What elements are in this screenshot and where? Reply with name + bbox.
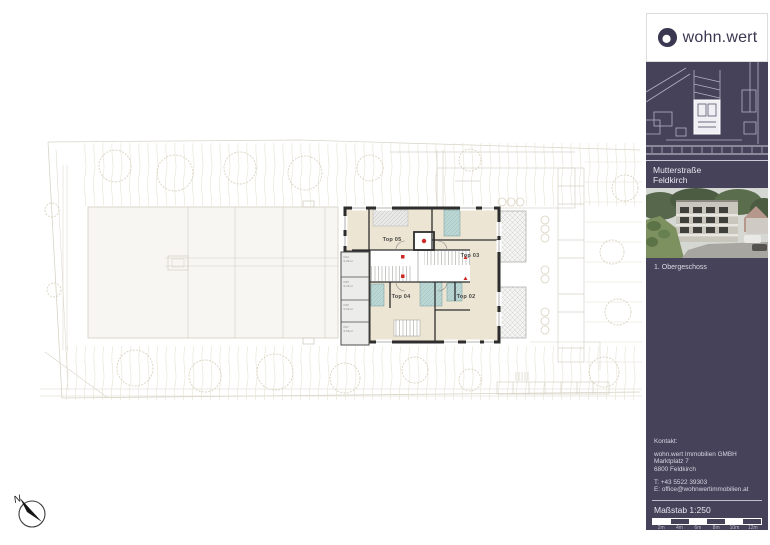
logo-text: wohn.wert [683, 29, 758, 47]
north-label: N [12, 493, 23, 506]
sidebar-body: Mutterstraße Feldkirch [646, 62, 768, 530]
scale-label: Maßstab 1:250 [654, 505, 711, 515]
scale-ticks: 2m 4m 6m 8m 10m 12m [652, 525, 762, 531]
svg-text:6,51m²: 6,51m² [344, 329, 353, 333]
building-photo [646, 188, 768, 258]
divider [652, 500, 762, 501]
north-arrow: N [8, 490, 54, 536]
site-plan-drawing: Top 05 Top 03 Top 04 Top 02 K04 6,01m² K… [0, 0, 646, 545]
contact-block: Kontakt: wohn.wert Immobilien GMBH Markt… [654, 438, 748, 493]
contact-email: E: office@wohnwertimmobilien.at [654, 486, 748, 493]
site-map-panel [646, 62, 768, 161]
wohnwert-logo-icon [657, 27, 678, 48]
contact-heading: Kontakt: [654, 438, 748, 445]
project-label: Mutterstraße Feldkirch [653, 165, 701, 185]
unit-label-top04: Top 04 [392, 294, 412, 300]
balcony-bottom-right [499, 287, 526, 338]
contact-street: Marktplatz 7 [654, 458, 748, 465]
unit-label-top03: Top 03 [461, 253, 480, 259]
svg-text:5,01m²: 5,01m² [344, 284, 353, 288]
garage-roof-outline [88, 201, 338, 344]
balcony-top-right [499, 211, 526, 262]
svg-text:6,01m²: 6,01m² [344, 307, 353, 311]
contact-phone: T: +43 5522 39303 [654, 479, 748, 486]
sidebar: wohn.wert [646, 13, 768, 530]
contact-city: 6800 Feldkirch [654, 466, 748, 473]
loggia [373, 210, 408, 226]
contact-company: wohn.wert Immobilien GMBH [654, 451, 748, 458]
site-map-drawing [646, 62, 768, 160]
building-floorplan: Top 05 Top 03 Top 04 Top 02 K04 6,01m² K… [341, 206, 526, 346]
floor-label: 1. Obergeschoss [654, 264, 707, 271]
scale-bar [652, 518, 762, 525]
logo-card: wohn.wert [646, 13, 768, 62]
unit-label-top02: Top 02 [457, 294, 476, 300]
svg-text:6,01m²: 6,01m² [344, 259, 353, 263]
unit-label-top05: Top 05 [383, 237, 402, 243]
project-street: Mutterstraße [653, 165, 701, 175]
project-city: Feldkirch [653, 175, 701, 185]
plan-sheet: Top 05 Top 03 Top 04 Top 02 K04 6,01m² K… [0, 0, 770, 545]
